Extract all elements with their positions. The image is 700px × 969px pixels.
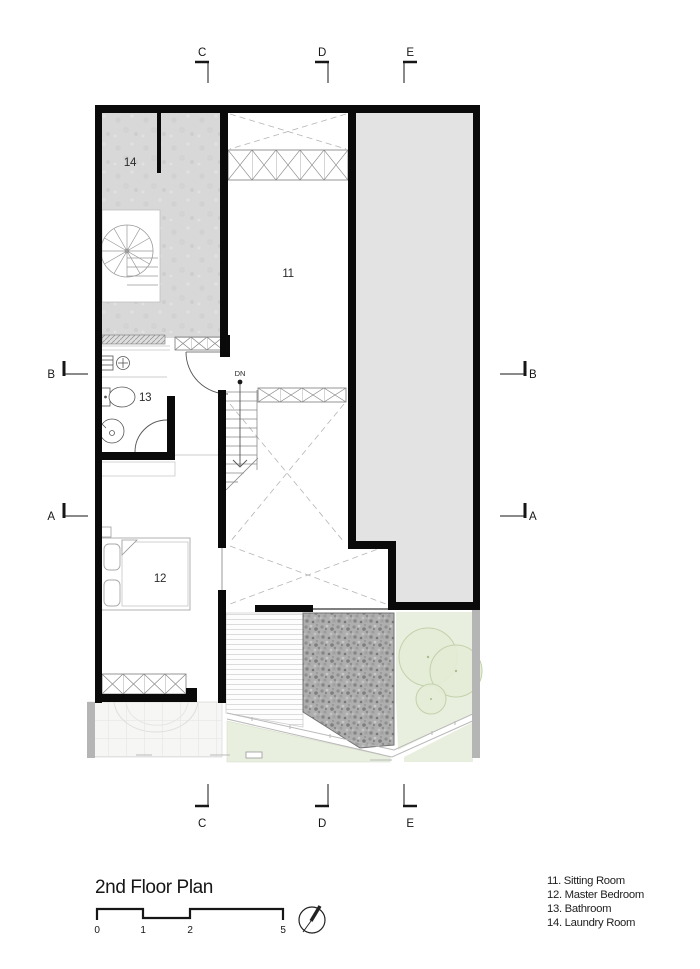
marker-label-top-d: D <box>318 47 326 59</box>
truss-window-bedroom <box>102 674 186 694</box>
marker-label-top-e: E <box>406 47 414 59</box>
marker-label-top-c: C <box>198 47 206 59</box>
truss-window-hall <box>175 337 222 350</box>
sink-icon <box>101 356 130 370</box>
section-marker-bottom-e <box>403 784 417 806</box>
window-opening <box>218 548 226 590</box>
dn-arrow <box>233 380 247 467</box>
legend-item-master-bedroom: 12. Master Bedroom <box>547 889 644 901</box>
section-marker-right-a <box>500 503 525 518</box>
north-arrow-icon <box>299 906 325 933</box>
basin-icon <box>100 419 124 443</box>
bathroom-fixtures <box>100 346 218 455</box>
scale-label-0: 0 <box>94 925 100 936</box>
room-label-bathroom: 13 <box>139 392 151 404</box>
room-label-master-bedroom: 12 <box>154 573 166 585</box>
section-marker-left-a <box>64 503 88 518</box>
gravel-area <box>303 613 394 748</box>
marker-label-left-b: B <box>47 369 55 381</box>
terrace <box>88 702 222 757</box>
right-strip <box>472 610 480 758</box>
bench <box>246 752 262 758</box>
left-strip <box>87 702 95 758</box>
stair-down-label: DN <box>235 369 246 378</box>
door-arc-bathroom <box>135 420 167 452</box>
room-label-laundry: 14 <box>124 157 137 169</box>
scale-label-5: 5 <box>280 925 286 936</box>
legend: 11. Sitting Room 12. Master Bedroom 13. … <box>547 875 644 929</box>
marker-label-bottom-e: E <box>406 818 414 830</box>
section-marker-left-b <box>64 361 88 376</box>
marker-label-bottom-c: C <box>198 818 206 830</box>
section-marker-top-d <box>315 62 329 83</box>
legend-item-bathroom: 13. Bathroom <box>547 903 611 915</box>
room-label-sitting: 11 <box>282 268 293 280</box>
truss-window-mid <box>258 388 346 402</box>
floor-plan-page: 14 11 13 12 DN <box>0 0 700 969</box>
spiral-stair-icon <box>101 210 160 302</box>
bed-icon <box>100 527 190 610</box>
section-marker-bottom-d <box>315 784 329 806</box>
section-marker-right-b <box>500 361 525 376</box>
marker-label-right-a: A <box>529 511 537 523</box>
door-arc-hall <box>186 352 228 394</box>
hatched-wall <box>102 335 165 344</box>
scale-label-2: 2 <box>187 925 193 936</box>
wardrobe <box>97 462 175 476</box>
plan-title: 2nd Floor Plan <box>95 877 213 898</box>
marker-label-right-b: B <box>529 369 537 381</box>
toilet-icon <box>101 387 135 407</box>
marker-label-bottom-d: D <box>318 818 326 830</box>
floor-plan-canvas: 14 11 13 12 DN <box>0 0 700 969</box>
legend-item-sitting: 11. Sitting Room <box>547 875 625 887</box>
scale-bar: 0 1 2 5 <box>94 909 286 936</box>
section-marker-top-e <box>403 62 417 83</box>
section-marker-top-c <box>195 62 209 83</box>
upper-mass <box>356 113 473 602</box>
legend-item-laundry: 14. Laundry Room <box>547 917 635 929</box>
section-marker-bottom-c <box>195 784 209 806</box>
marker-label-left-a: A <box>47 511 55 523</box>
scale-label-1: 1 <box>140 925 146 936</box>
truss-window-top <box>228 150 348 180</box>
wood-deck <box>226 613 303 727</box>
